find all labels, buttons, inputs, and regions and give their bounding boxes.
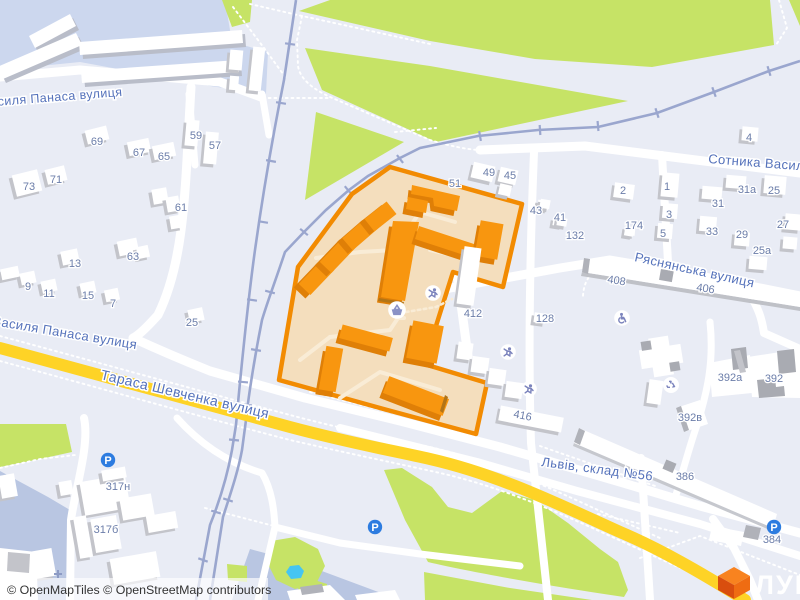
svg-text:132: 132: [566, 230, 584, 242]
svg-text:25: 25: [768, 185, 780, 197]
svg-text:P: P: [770, 522, 777, 534]
svg-text:ЛУН: ЛУН: [755, 570, 800, 600]
svg-text:49: 49: [483, 167, 495, 179]
svg-text:57: 57: [209, 140, 221, 152]
svg-text:69: 69: [91, 136, 103, 148]
svg-text:3: 3: [666, 209, 672, 221]
svg-text:11: 11: [43, 288, 54, 300]
svg-text:27: 27: [777, 219, 789, 231]
svg-text:67: 67: [133, 147, 145, 159]
svg-text:9: 9: [25, 281, 31, 293]
svg-text:43: 43: [530, 205, 542, 217]
svg-text:61: 61: [175, 202, 187, 214]
svg-text:31: 31: [712, 198, 724, 210]
svg-text:13: 13: [69, 258, 81, 270]
svg-text:51: 51: [449, 178, 461, 190]
svg-text:412: 412: [464, 308, 482, 320]
svg-text:25: 25: [186, 317, 198, 329]
svg-text:4: 4: [746, 132, 752, 144]
svg-text:63: 63: [127, 251, 139, 263]
svg-text:7: 7: [110, 298, 116, 310]
svg-text:31a: 31a: [738, 184, 757, 196]
svg-text:73: 73: [23, 181, 35, 193]
svg-text:384: 384: [763, 534, 781, 546]
svg-text:45: 45: [504, 170, 516, 182]
svg-text:1: 1: [664, 181, 670, 193]
svg-text:392: 392: [765, 373, 783, 385]
svg-text:29: 29: [736, 229, 748, 241]
svg-text:392в: 392в: [678, 412, 702, 424]
svg-text:15: 15: [82, 290, 94, 302]
svg-text:5: 5: [660, 228, 666, 240]
svg-text:41: 41: [554, 212, 566, 224]
svg-text:317н: 317н: [106, 481, 130, 493]
svg-text:128: 128: [536, 313, 554, 325]
svg-text:71: 71: [50, 174, 62, 186]
svg-text:P: P: [104, 455, 111, 467]
svg-text:174: 174: [625, 220, 643, 232]
svg-text:25a: 25a: [753, 245, 772, 257]
svg-text:33: 33: [706, 226, 718, 238]
svg-text:P: P: [371, 522, 378, 534]
svg-text:2: 2: [620, 185, 626, 197]
svg-text:317б: 317б: [94, 524, 119, 536]
svg-text:© OpenMapTiles © OpenStreetMap: © OpenMapTiles © OpenStreetMap contribut…: [7, 583, 271, 597]
svg-text:386: 386: [676, 471, 694, 483]
svg-text:392a: 392a: [718, 372, 743, 384]
svg-text:65: 65: [158, 151, 170, 163]
svg-text:59: 59: [190, 130, 202, 142]
